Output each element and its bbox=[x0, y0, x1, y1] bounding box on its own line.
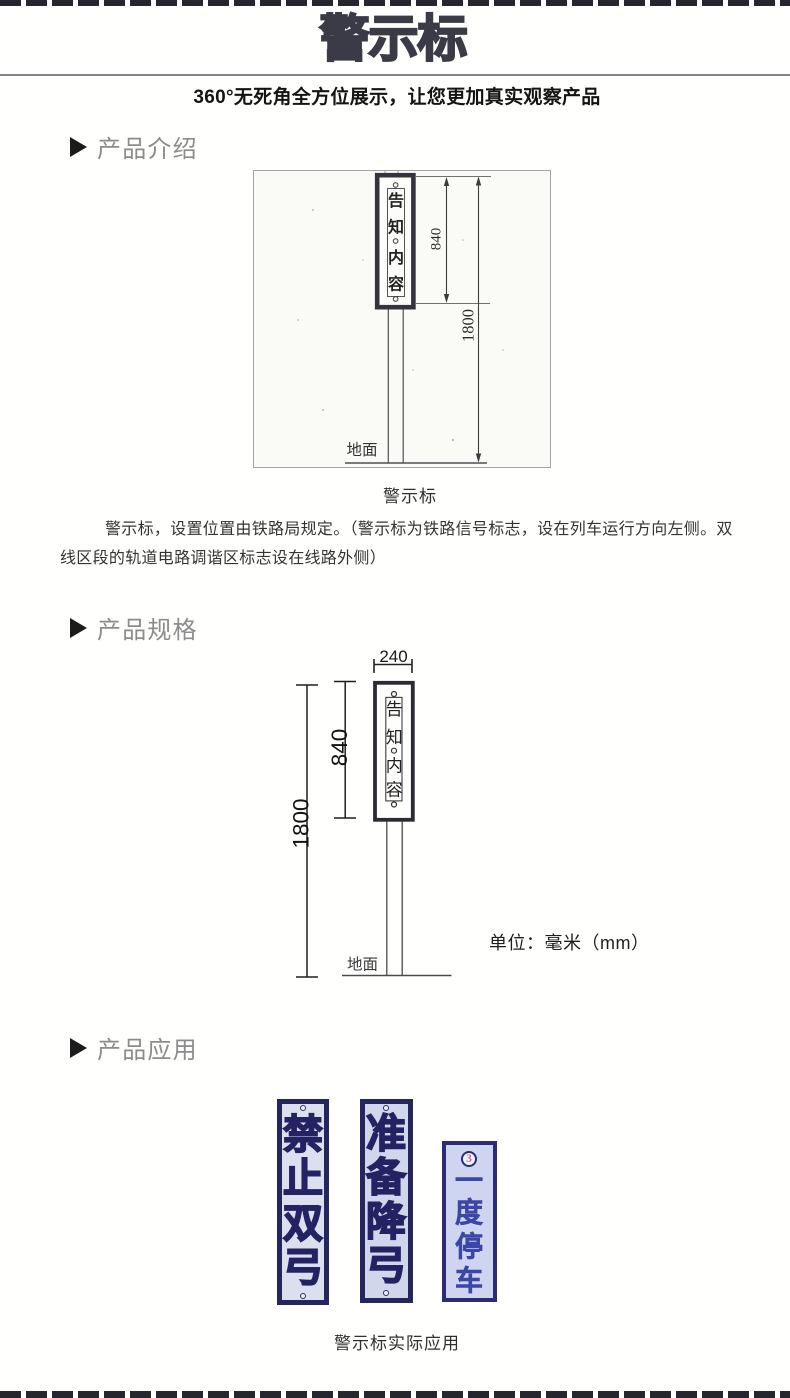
svg-text:内: 内 bbox=[388, 248, 404, 267]
svg-text:840: 840 bbox=[428, 228, 444, 251]
svg-text:240: 240 bbox=[379, 647, 407, 666]
svg-text:内: 内 bbox=[386, 756, 403, 775]
svg-text:知: 知 bbox=[388, 218, 404, 237]
svg-text:告: 告 bbox=[388, 191, 404, 210]
svg-text:容: 容 bbox=[387, 275, 404, 294]
svg-text:知: 知 bbox=[386, 728, 403, 747]
svg-text:地面: 地面 bbox=[347, 956, 378, 974]
svg-text:1800: 1800 bbox=[288, 798, 313, 848]
svg-text:容: 容 bbox=[386, 781, 403, 800]
svg-text:1800: 1800 bbox=[458, 309, 477, 342]
svg-text:840: 840 bbox=[327, 729, 352, 767]
svg-text:告: 告 bbox=[386, 700, 403, 719]
svg-text:地面: 地面 bbox=[346, 441, 377, 459]
